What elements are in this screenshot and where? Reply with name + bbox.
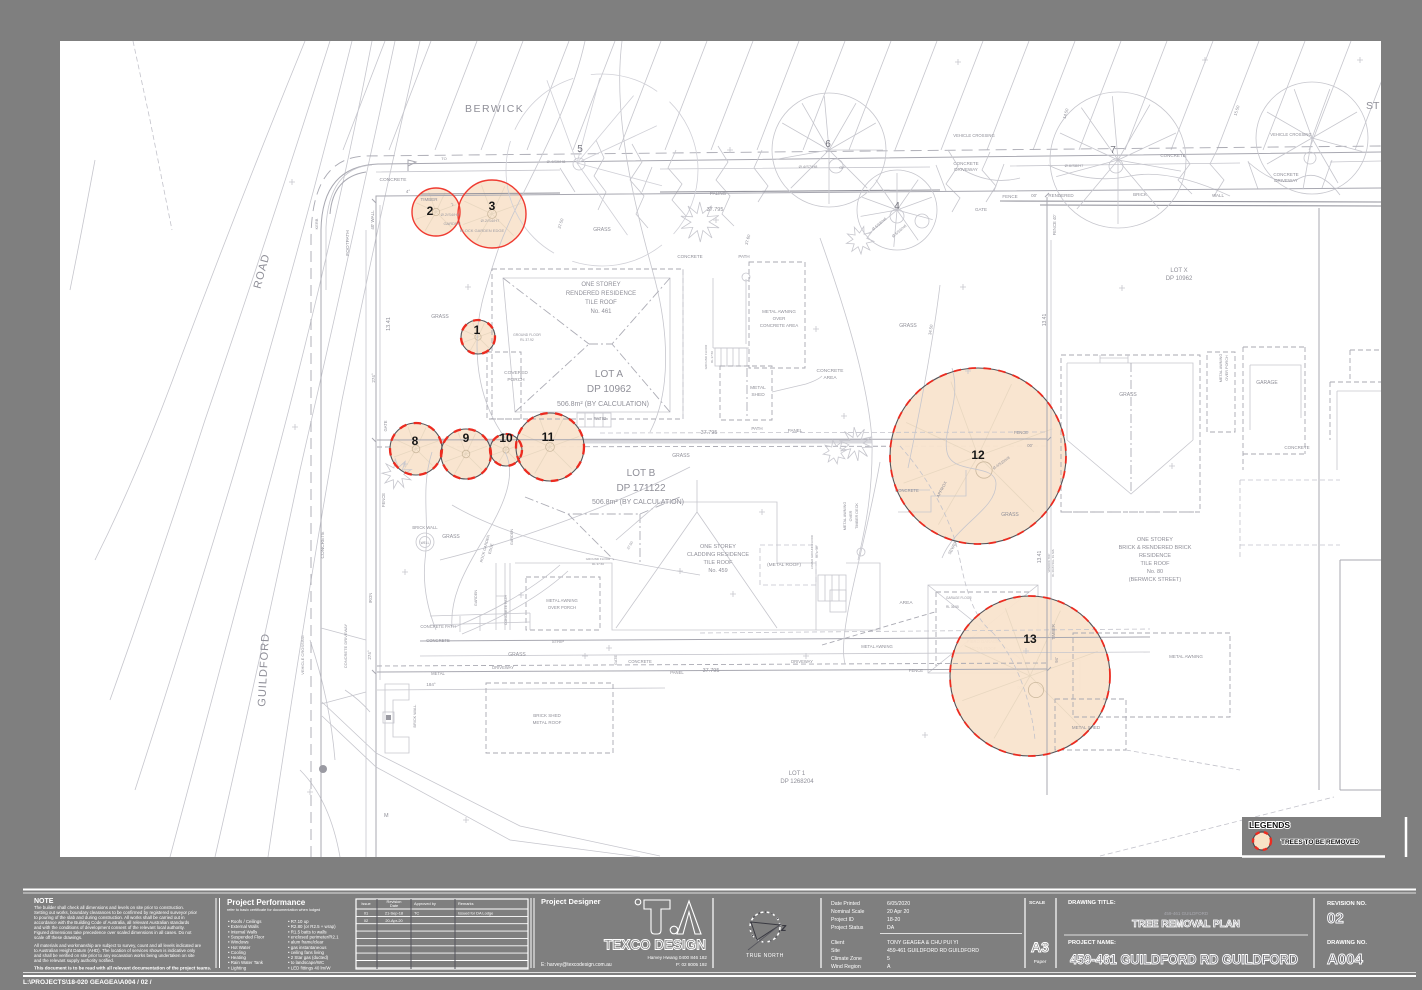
svg-text:ST: ST: [1366, 100, 1380, 112]
svg-text:5: 5: [887, 956, 890, 962]
svg-text:GATE: GATE: [383, 420, 388, 431]
svg-text:RL 37.50: RL 37.50: [710, 351, 714, 363]
svg-text:20 Apr 20: 20 Apr 20: [887, 909, 909, 915]
svg-text:BRICK: BRICK: [1133, 192, 1147, 197]
svg-text:GROUND FLOOR: GROUND FLOOR: [586, 557, 611, 561]
svg-text:Ø.4/S9/H8: Ø.4/S9/H8: [547, 159, 566, 164]
svg-text:METAL AWNING: METAL AWNING: [546, 598, 578, 603]
svg-text:LOT 1: LOT 1: [789, 771, 806, 777]
svg-text:PALING: PALING: [710, 191, 727, 196]
svg-text:CLADDING RESIDENCE: CLADDING RESIDENCE: [687, 552, 749, 558]
svg-text:Project ID: Project ID: [831, 917, 854, 923]
svg-text:CONCRETE: CONCRETE: [628, 659, 652, 664]
svg-text:No. 80: No. 80: [1147, 569, 1163, 575]
svg-text:GROUND FLOOR: GROUND FLOOR: [704, 344, 708, 369]
svg-text:A: A: [887, 964, 891, 970]
svg-text:Project Status: Project Status: [831, 925, 864, 931]
svg-text:Paper: Paper: [1034, 959, 1047, 965]
svg-text:CONCRETE DRIVEWAY: CONCRETE DRIVEWAY: [343, 623, 348, 668]
svg-text:SHED: SHED: [751, 392, 765, 398]
svg-text:Issue: Issue: [361, 901, 370, 906]
svg-text:DP 171122: DP 171122: [616, 483, 666, 494]
svg-text:WELL: WELL: [421, 541, 430, 545]
svg-text:CONCRETE: CONCRETE: [895, 488, 919, 493]
svg-text:LOT B: LOT B: [627, 468, 656, 479]
svg-text:184°: 184°: [426, 682, 436, 687]
svg-text:RENDERED RESIDENCE: RENDERED RESIDENCE: [566, 291, 636, 297]
svg-text:13.41: 13.41: [1042, 314, 1048, 327]
svg-text:DRIVEWAY: DRIVEWAY: [954, 167, 978, 172]
svg-text:IRON: IRON: [368, 593, 373, 603]
svg-text:LOT X: LOT X: [1170, 268, 1187, 274]
svg-text:NOTE: NOTE: [34, 898, 54, 905]
svg-text:• LED fittings 40 lm/W: • LED fittings 40 lm/W: [288, 965, 331, 970]
svg-text:Ø.4/S7/H8: Ø.4/S7/H8: [799, 164, 818, 169]
svg-text:TEXCO DESIGN: TEXCO DESIGN: [604, 937, 706, 954]
svg-text:FENCE 40': FENCE 40': [1052, 214, 1057, 235]
svg-text:SCALE: SCALE: [1029, 900, 1046, 906]
svg-text:RESIDENCE: RESIDENCE: [1139, 553, 1171, 559]
svg-text:LEGENDS: LEGENDS: [1249, 820, 1290, 830]
svg-text:GRASS: GRASS: [431, 314, 449, 320]
svg-text:WALL: WALL: [1212, 193, 1225, 198]
svg-text:37.795: 37.795: [703, 668, 720, 674]
svg-text:METAL AWNING: METAL AWNING: [843, 502, 847, 531]
svg-text:PATIO: PATIO: [594, 416, 607, 421]
svg-text:RL 37.92: RL 37.92: [520, 338, 534, 342]
svg-text:DP 1268204: DP 1268204: [780, 779, 814, 785]
svg-text:FOOTPATH: FOOTPATH: [345, 230, 351, 256]
svg-text:METAL AWNING: METAL AWNING: [1169, 654, 1203, 659]
svg-text:CONCRETE PATH: CONCRETE PATH: [504, 594, 508, 625]
svg-text:Climate Zone: Climate Zone: [831, 956, 862, 962]
svg-text:Project Performance: Project Performance: [227, 898, 306, 907]
svg-text:3: 3: [489, 199, 496, 213]
svg-text:OVER: OVER: [773, 316, 787, 321]
svg-text:GARAGE FLOOR: GARAGE FLOOR: [946, 596, 972, 600]
svg-text:OF: OF: [839, 165, 845, 170]
svg-text:A004: A004: [1327, 951, 1364, 968]
svg-text:GATE: GATE: [975, 207, 987, 212]
svg-text:DP 10962: DP 10962: [1166, 276, 1193, 282]
svg-text:FENCE: FENCE: [1002, 194, 1017, 199]
svg-text:CONCRETE: CONCRETE: [426, 638, 450, 643]
svg-text:METAL: METAL: [750, 385, 766, 391]
svg-text:Remarks: Remarks: [458, 901, 474, 906]
svg-text:PATH: PATH: [738, 254, 749, 259]
svg-text:OVER: OVER: [849, 510, 853, 521]
svg-text:TC: TC: [414, 911, 419, 916]
svg-text:GARAGE: GARAGE: [1256, 380, 1278, 386]
svg-text:METAL AWNING: METAL AWNING: [861, 644, 893, 649]
svg-text:37.795: 37.795: [707, 207, 724, 213]
svg-text:OVER PORCH: OVER PORCH: [1225, 355, 1229, 381]
svg-text:and the relevant supply author: and the relevant supply authority notifi…: [34, 958, 114, 963]
svg-text:459-461 GUILDFORD RD GUILDFORD: 459-461 GUILDFORD RD GUILDFORD: [887, 948, 979, 954]
svg-text:scale off these drawings.: scale off these drawings.: [34, 935, 82, 940]
svg-text:AREA: AREA: [823, 375, 837, 381]
svg-text:RL 37.60: RL 37.60: [592, 562, 604, 566]
svg-text:Client: Client: [831, 940, 845, 946]
svg-text:RL 39.84 SILL RL N/A: RL 39.84 SILL RL N/A: [1051, 549, 1055, 576]
svg-text:274°: 274°: [367, 650, 372, 660]
svg-text:ONE STOREY: ONE STOREY: [700, 544, 736, 550]
svg-text:GRASS: GRASS: [508, 652, 526, 658]
svg-text:DRAWING NO.: DRAWING NO.: [1327, 940, 1367, 946]
svg-text:Approved by: Approved by: [414, 901, 436, 906]
svg-text:TIMBER: TIMBER: [420, 197, 438, 202]
svg-text:18-20: 18-20: [887, 917, 900, 923]
svg-text:TONY GEAGEA & CHU PUI YI: TONY GEAGEA & CHU PUI YI: [887, 940, 958, 946]
svg-text:PORCH: PORCH: [507, 377, 525, 383]
svg-text:AREA: AREA: [899, 600, 913, 606]
svg-text:GRASS: GRASS: [672, 453, 690, 459]
svg-text:02: 02: [1327, 910, 1344, 927]
svg-text:DRIVEWAY: DRIVEWAY: [1274, 178, 1298, 183]
svg-text:METAL AWNING: METAL AWNING: [762, 309, 796, 314]
svg-text:DA: DA: [887, 925, 895, 931]
svg-text:2: 2: [427, 204, 434, 218]
svg-text:(BERWICK STREET): (BERWICK STREET): [1129, 577, 1182, 583]
svg-text:4°: 4°: [406, 189, 411, 194]
svg-text:6: 6: [825, 139, 831, 150]
svg-text:GRASS: GRASS: [899, 323, 917, 329]
svg-text:No. 459: No. 459: [708, 568, 727, 574]
svg-text:Ø.2/S4/H7: Ø.2/S4/H7: [481, 218, 500, 223]
svg-text:CONCRETE: CONCRETE: [380, 177, 407, 183]
svg-text:00': 00': [1031, 193, 1037, 198]
svg-text:Date: Date: [390, 903, 398, 908]
svg-text:02: 02: [364, 918, 368, 923]
svg-text:GATE: GATE: [614, 655, 618, 666]
svg-text:GRASS: GRASS: [442, 534, 460, 540]
svg-text:4: 4: [894, 201, 900, 212]
svg-text:E: harvey@texcodesign.com.au: E: harvey@texcodesign.com.au: [541, 962, 612, 968]
svg-text:METAL: METAL: [431, 671, 445, 676]
svg-text:• Lighting: • Lighting: [228, 965, 247, 970]
svg-text:13: 13: [1023, 632, 1037, 646]
svg-text:DP 10962: DP 10962: [587, 384, 632, 395]
svg-text:LOWER GROUND FLOOR: LOWER GROUND FLOOR: [810, 535, 814, 569]
svg-text:8: 8: [412, 434, 419, 448]
svg-text:37.795: 37.795: [701, 430, 718, 436]
svg-text:6/05/2020: 6/05/2020: [887, 901, 910, 907]
svg-text:DRIVEWAY: DRIVEWAY: [492, 665, 514, 670]
svg-text:Harvey Hwang 0400 846 182: Harvey Hwang 0400 846 182: [647, 955, 707, 960]
svg-text:ONE STOREY: ONE STOREY: [1137, 537, 1173, 543]
svg-text:13.41: 13.41: [386, 317, 392, 331]
svg-text:40' WALL: 40' WALL: [370, 210, 375, 230]
svg-text:TREE REMOVAL PLAN: TREE REMOVAL PLAN: [1132, 919, 1240, 930]
svg-text:This document is to be read wi: This document is to be read with all rel…: [34, 966, 211, 971]
svg-text:11: 11: [542, 430, 555, 444]
svg-text:CONCRETE: CONCRETE: [677, 254, 702, 259]
svg-text:GARDEN: GARDEN: [510, 529, 514, 546]
svg-text:00': 00': [1027, 443, 1033, 448]
svg-text:ONE STOREY: ONE STOREY: [581, 282, 620, 288]
svg-text:A3: A3: [1031, 939, 1049, 955]
svg-text:TRUE NORTH: TRUE NORTH: [746, 953, 784, 959]
svg-text:FENCE: FENCE: [1014, 430, 1028, 435]
svg-text:PANEL: PANEL: [788, 428, 803, 433]
svg-text:BRICK SHED: BRICK SHED: [533, 713, 561, 718]
svg-text:z: z: [780, 922, 787, 934]
svg-text:OVER PORCH: OVER PORCH: [548, 605, 576, 610]
svg-text:RL 36.55: RL 36.55: [946, 605, 959, 609]
svg-text:Project Designer: Project Designer: [541, 897, 601, 906]
svg-text:TREES TO BE REMOVED: TREES TO BE REMOVED: [1281, 839, 1359, 846]
svg-text:CONCRETE PATH: CONCRETE PATH: [420, 624, 455, 629]
svg-text:L:\PROJECTS\18-020 GEAGEA\A004: L:\PROJECTS\18-020 GEAGEA\A004 / 02 /: [23, 979, 152, 986]
svg-text:DRAWING TITLE:: DRAWING TITLE:: [1068, 900, 1116, 906]
svg-text:TIMBER DECK: TIMBER DECK: [855, 503, 859, 529]
svg-text:RENDERED: RENDERED: [1048, 193, 1074, 198]
svg-text:GRASS: GRASS: [1001, 512, 1019, 518]
svg-text:PATH: PATH: [751, 426, 762, 431]
svg-text:FENCE: FENCE: [381, 493, 386, 507]
svg-text:CONCRETE: CONCRETE: [1160, 153, 1185, 158]
svg-text:CONCRETE: CONCRETE: [817, 368, 844, 374]
svg-text:M: M: [384, 813, 389, 819]
svg-text:506.8m² (BY CALCULATION): 506.8m² (BY CALCULATION): [592, 499, 684, 506]
svg-text:PANEL: PANEL: [670, 670, 684, 675]
svg-text:Wind Region: Wind Region: [831, 964, 861, 970]
svg-text:VEHICLE CROSSING: VEHICLE CROSSING: [1270, 132, 1311, 137]
svg-text:Ø.6/S8/H7: Ø.6/S8/H7: [1065, 163, 1084, 168]
svg-text:21-Sep-18: 21-Sep-18: [385, 911, 403, 916]
svg-text:DRIVEWAY: DRIVEWAY: [791, 659, 813, 664]
svg-text:CONCRETE: CONCRETE: [953, 161, 978, 166]
svg-text:refer to basix certificate for: refer to basix certificate for documenta…: [227, 908, 320, 912]
svg-text:BRICK WALL: BRICK WALL: [412, 525, 438, 530]
svg-text:GARDEN: GARDEN: [443, 221, 460, 226]
svg-text:Date Printed: Date Printed: [831, 901, 860, 907]
svg-text:GRASS: GRASS: [1119, 392, 1137, 398]
svg-text:BRICK & RENDERED BRICK: BRICK & RENDERED BRICK: [1119, 545, 1192, 551]
svg-text:REVISION NO.: REVISION NO.: [1327, 901, 1367, 907]
svg-text:1: 1: [474, 323, 481, 337]
svg-text:CONCRETE: CONCRETE: [1284, 445, 1309, 450]
svg-text:KERB: KERB: [314, 218, 319, 229]
svg-text:No. 461: No. 461: [590, 309, 612, 315]
svg-text:METAL AWNING: METAL AWNING: [1219, 354, 1223, 383]
svg-text:5: 5: [577, 144, 583, 155]
svg-text:STRIP: STRIP: [552, 639, 565, 644]
svg-text:BERWICK: BERWICK: [465, 103, 524, 115]
svg-text:METAL SHED: METAL SHED: [1072, 725, 1101, 730]
svg-text:TILE ROOF: TILE ROOF: [703, 560, 733, 566]
svg-text:TO: TO: [441, 156, 446, 161]
svg-text:Issued for DA Lodge: Issued for DA Lodge: [458, 911, 493, 916]
svg-text:VEHICLE CROSSING: VEHICLE CROSSING: [300, 635, 305, 675]
svg-text:13.41: 13.41: [1037, 551, 1043, 564]
svg-text:274°: 274°: [371, 373, 376, 383]
svg-text:GRASS: GRASS: [593, 227, 611, 233]
svg-text:(METAL ROOF): (METAL ROOF): [767, 562, 801, 568]
svg-text:CONCRETE AREA: CONCRETE AREA: [760, 323, 799, 328]
svg-text:LOT A: LOT A: [595, 369, 623, 380]
svg-text:RL 37.38: RL 37.38: [815, 546, 819, 558]
svg-text:94': 94': [1054, 657, 1059, 663]
svg-text:TIMBER: TIMBER: [1051, 624, 1056, 640]
svg-text:9: 9: [463, 431, 470, 445]
svg-text:459-461 GUILDFORD: 459-461 GUILDFORD: [1164, 911, 1209, 916]
svg-text:20-Apr-20: 20-Apr-20: [385, 918, 403, 923]
svg-text:BLOCK GARDEN EDGE: BLOCK GARDEN EDGE: [460, 228, 505, 233]
svg-text:COVERED: COVERED: [504, 370, 528, 376]
svg-text:FENCE: FENCE: [909, 668, 923, 673]
svg-text:GROUND FLOOR: GROUND FLOOR: [513, 333, 541, 337]
svg-text:7: 7: [1110, 145, 1116, 156]
svg-text:TILE ROOF: TILE ROOF: [585, 300, 617, 306]
svg-text:PROJECT NAME:: PROJECT NAME:: [1068, 940, 1116, 946]
svg-text:459-461 GUILDFORD RD GUILDFORD: 459-461 GUILDFORD RD GUILDFORD: [1070, 952, 1298, 967]
svg-text:TILE ROOF: TILE ROOF: [1140, 561, 1170, 567]
svg-text:Site: Site: [831, 948, 840, 954]
svg-text:Ø.2/S4/H4: Ø.2/S4/H4: [441, 212, 460, 217]
svg-text:BRICK WALL: BRICK WALL: [413, 705, 417, 728]
svg-text:01: 01: [364, 911, 368, 916]
svg-text:VEHICLE CROSSING: VEHICLE CROSSING: [953, 133, 994, 138]
svg-text:GARDEN: GARDEN: [474, 590, 478, 607]
svg-text:Nominal Scale: Nominal Scale: [831, 909, 865, 915]
svg-text:12: 12: [971, 448, 985, 462]
svg-text:10: 10: [499, 431, 513, 445]
svg-text:CONCRETE: CONCRETE: [320, 532, 326, 559]
svg-text:CONCRETE: CONCRETE: [1273, 172, 1298, 177]
svg-text:METAL ROOF: METAL ROOF: [533, 720, 562, 725]
svg-text:P: 02 8005 192: P: 02 8005 192: [676, 962, 708, 967]
svg-text:506.8m² (BY CALCULATION): 506.8m² (BY CALCULATION): [557, 401, 649, 408]
